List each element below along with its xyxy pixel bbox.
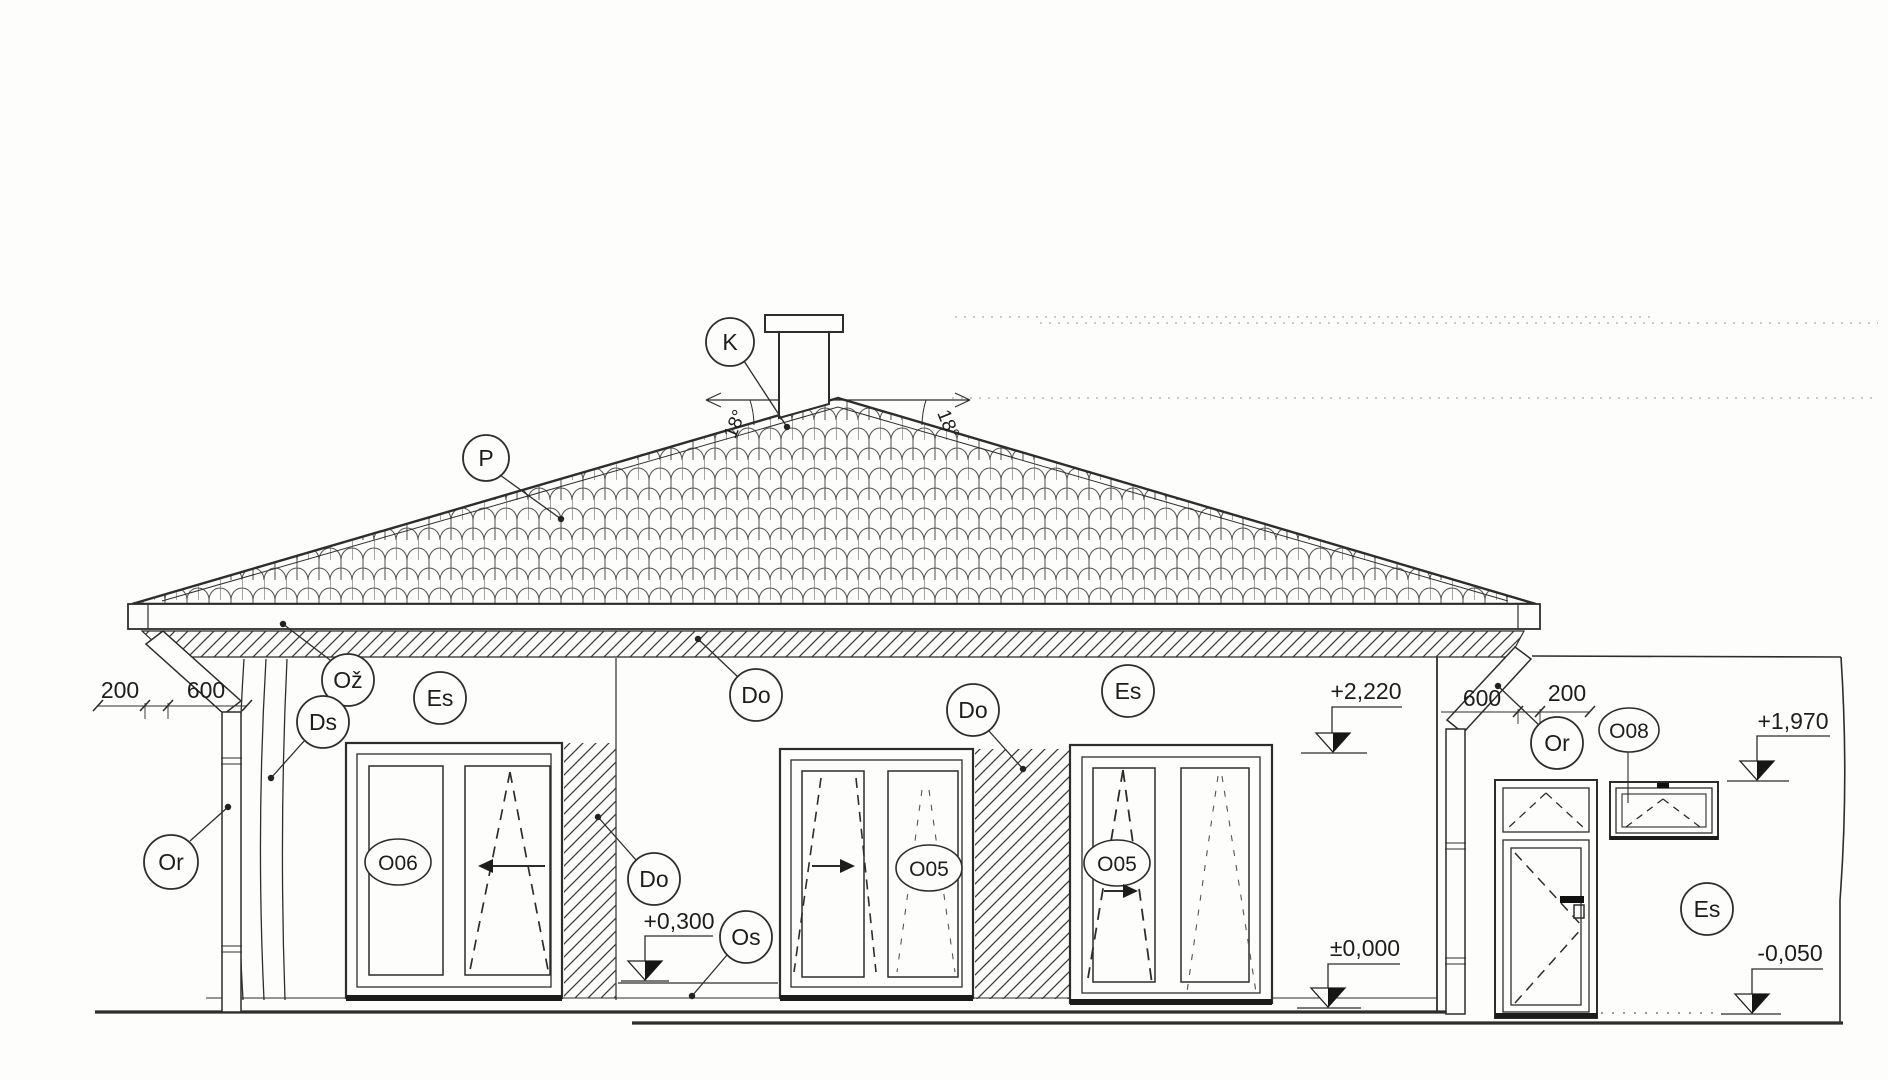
annex-window-O08: O08	[1599, 708, 1718, 840]
annex-door	[1495, 780, 1597, 1018]
leader-line	[692, 955, 727, 996]
annex-roof-edge	[1532, 656, 1841, 657]
clad-pier-left	[564, 743, 616, 998]
level-marker-ground-floor: ±0,000	[1297, 935, 1400, 1008]
level-value: +1,970	[1758, 708, 1829, 734]
leader-dot	[268, 775, 274, 781]
level-value: -0,050	[1757, 940, 1822, 966]
callout-label: Es	[1115, 678, 1142, 704]
leader-dot	[1020, 766, 1026, 772]
window-sill-shadow	[1610, 836, 1718, 840]
level-flag	[1328, 964, 1400, 988]
callout-label: Os	[731, 924, 760, 950]
opening-tag-label: O06	[378, 852, 418, 875]
callout-label: Es	[1694, 896, 1721, 922]
window-sill-shadow	[1070, 999, 1272, 1005]
callout-label: Do	[639, 866, 668, 892]
callout-plaster-1: Es	[414, 672, 466, 724]
clad-pier-right	[975, 749, 1070, 999]
dimension-value: 200	[101, 677, 139, 703]
window-sill-shadow	[780, 995, 973, 1001]
callout-chimney: K	[706, 318, 790, 430]
leader-dot	[695, 636, 701, 642]
window-O05-center: O05	[780, 749, 973, 1001]
door-handle-lever	[1560, 896, 1584, 903]
level-marker-eave: +2,220	[1301, 678, 1402, 753]
leader-dot	[225, 804, 231, 810]
callout-label: Ož	[333, 667, 362, 693]
level-flag	[1757, 736, 1830, 761]
window-O06: O06	[346, 743, 562, 1001]
callout-label: Or	[158, 849, 184, 875]
opening-tag-label: O05	[1097, 853, 1137, 876]
dimension-value: 200	[1548, 680, 1586, 706]
hip-roof	[132, 396, 1536, 606]
callout-label: P	[478, 445, 493, 471]
callout-label: Es	[427, 685, 454, 711]
level-marker-entry-step: +0,300	[621, 908, 715, 981]
downspout-pipe	[222, 712, 241, 1012]
leader-line	[1498, 686, 1539, 725]
dimension-value: 600	[187, 677, 225, 703]
annex-right-edge	[1840, 657, 1845, 1022]
level-marker-annex-eave: +1,970	[1727, 708, 1830, 781]
opening-tag-label: O08	[1609, 720, 1649, 743]
window-sill-shadow	[346, 995, 562, 1001]
window-outer-frame	[1610, 782, 1718, 839]
callout-label: K	[722, 329, 738, 355]
gutter-profile	[128, 604, 1540, 629]
leader-line	[271, 740, 305, 778]
dimension-value: 600	[1463, 685, 1501, 711]
callout-label: Do	[741, 682, 770, 708]
callout-rain-pipe-left: Or	[144, 804, 231, 889]
leader-dot	[689, 993, 695, 999]
opening-tag-label: O05	[909, 858, 949, 881]
leader-dot	[280, 621, 286, 627]
callout-plaster-2: Es	[1102, 665, 1154, 717]
door-threshold-shadow	[1495, 1013, 1597, 1018]
level-flag	[645, 936, 713, 961]
leader-dot	[784, 424, 790, 430]
fascia-cladding-band	[142, 631, 1524, 657]
scan-dotted-line	[952, 317, 1878, 398]
level-value: +0,300	[644, 908, 715, 934]
callout-label: Do	[958, 697, 987, 723]
elevation-drawing: 18° 18°	[0, 0, 1888, 1080]
dimension-extensions	[1518, 709, 1540, 724]
level-value: ±0,000	[1330, 935, 1400, 961]
leader-dot	[558, 516, 564, 522]
level-flag	[1752, 969, 1823, 994]
scanned-elevation-page: 18° 18°	[0, 0, 1888, 1080]
left-corner-curved-edges	[238, 659, 287, 1000]
level-value: +2,220	[1331, 678, 1402, 704]
callout-corner-downpipe: Ds	[268, 696, 349, 781]
roof-tile-pattern	[132, 396, 1536, 606]
slope-angle-arc-left	[750, 400, 754, 425]
level-flag	[1332, 707, 1402, 733]
window-O05-right: O05	[1070, 745, 1272, 1005]
callout-plaster-3: Es	[1681, 883, 1733, 935]
callout-label: Or	[1544, 730, 1570, 756]
chimney-body	[779, 331, 829, 418]
callout-label: Ds	[309, 709, 337, 735]
dimension-extensions	[145, 703, 168, 719]
leader-dot	[595, 814, 601, 820]
level-marker-annex-floor: -0,050	[1721, 940, 1823, 1014]
slope-angle-arc-right	[922, 400, 926, 425]
hinge-mark	[1657, 783, 1669, 788]
chimney-cap	[765, 315, 843, 332]
downspout-pipe	[1446, 729, 1465, 1014]
eave	[128, 604, 1540, 657]
